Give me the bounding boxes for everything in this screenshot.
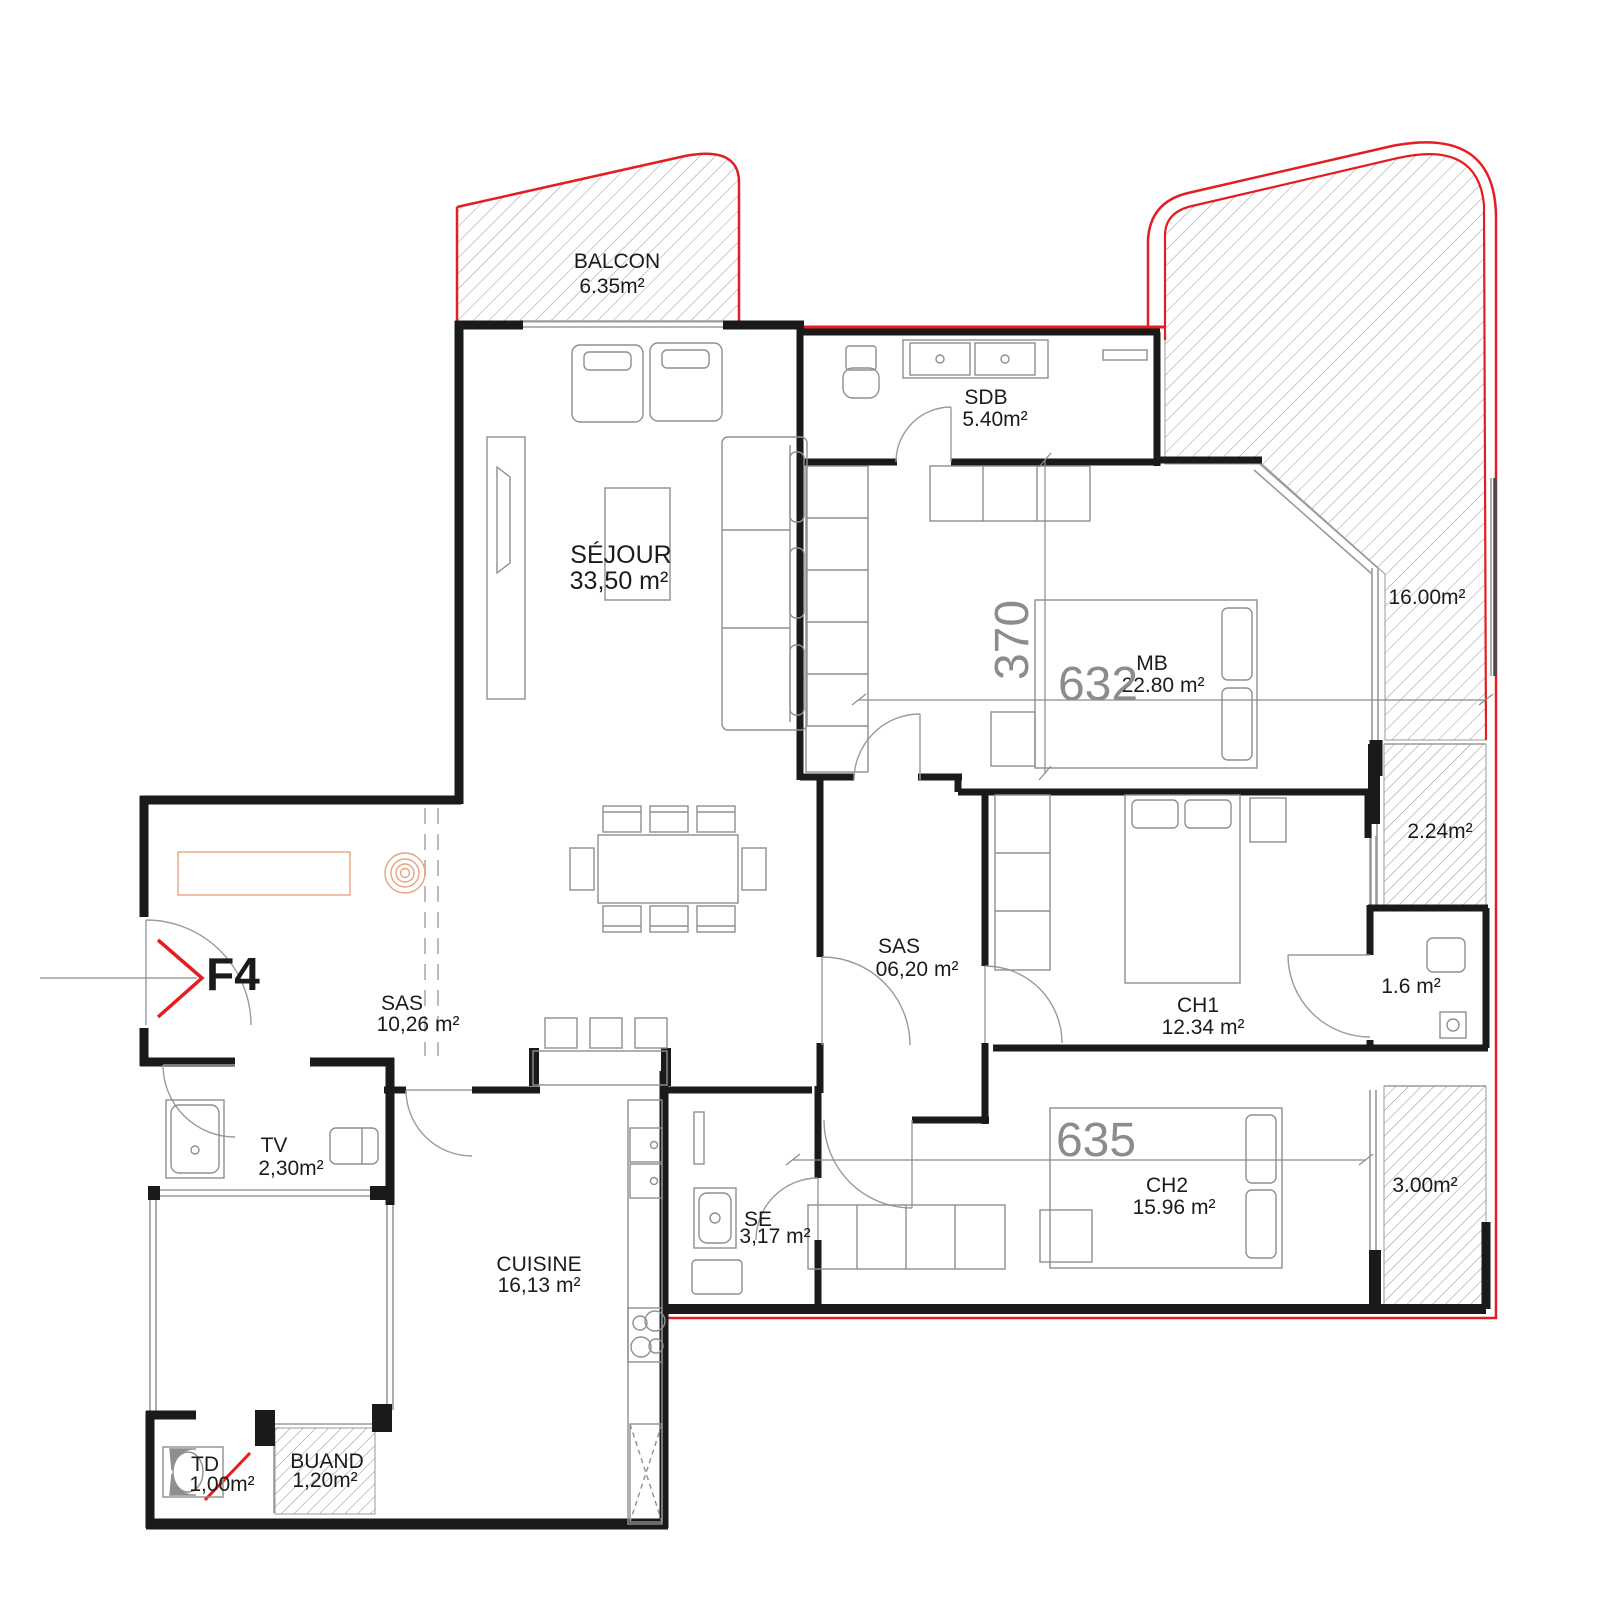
tv-room-window: [154, 1190, 378, 1196]
ch1-furniture: [995, 795, 1286, 983]
entry-console: [178, 852, 425, 895]
terrace-hatch: [1165, 154, 1486, 740]
wc-door-arc: [1288, 955, 1370, 1037]
sas-hall-area: 06,20 m²: [876, 958, 959, 981]
ch2-furniture: [808, 1108, 1282, 1269]
mb-right-window: [1372, 568, 1378, 740]
cuisine-name: CUISINE: [496, 1253, 581, 1276]
sdb-door-arc: [896, 407, 951, 462]
floor-plan-canvas: BALCON 6.35m² SÉJOUR 33,50 m² SDB 5.40m²…: [0, 0, 1600, 1623]
loggia-300-area: 3.00m²: [1392, 1174, 1457, 1197]
ch2-name: CH2: [1146, 1174, 1188, 1197]
loggia-224-area: 2.24m²: [1407, 820, 1472, 843]
dim-632: 632: [1058, 658, 1138, 711]
dining-table: [570, 806, 766, 932]
armchairs: [572, 343, 722, 422]
walls-exterior: [140, 321, 1486, 1528]
sejour-area: 33,50 m²: [570, 567, 669, 595]
se-fixtures: [692, 1112, 742, 1294]
kitchen-left-wall: [387, 1205, 393, 1410]
dim-635: 635: [1056, 1114, 1136, 1167]
buand-area: 1,20m²: [292, 1469, 357, 1492]
balcon-name: BALCON: [574, 250, 660, 273]
sas-hall-name: SAS: [878, 935, 920, 958]
dim-370: 370: [986, 600, 1039, 680]
sas-entree-area: 10,26 m²: [377, 1013, 460, 1036]
ch2-door-arc: [824, 1120, 912, 1208]
balcon-area: 6.35m²: [579, 275, 644, 298]
cuisine-area: 16,13 m²: [498, 1274, 581, 1297]
kitchen-door-arc: [406, 1090, 472, 1156]
wall-posts: [148, 1048, 671, 1446]
sas-entree-name: SAS: [381, 992, 423, 1015]
floor-plan: BALCON 6.35m² SÉJOUR 33,50 m² SDB 5.40m²…: [0, 0, 1600, 1623]
furniture: [163, 340, 1466, 1524]
doors: [146, 407, 1370, 1240]
left-lower-wall: [150, 1200, 156, 1415]
ch2-area: 15.96 m²: [1133, 1196, 1216, 1219]
ch2-right-window: [1370, 1090, 1376, 1250]
kitchen-bar: [533, 1018, 667, 1085]
sdb-name: SDB: [964, 386, 1007, 409]
sofa: [722, 437, 807, 730]
tv-area: 2,30m²: [258, 1157, 323, 1180]
mb-door-arc: [854, 714, 920, 780]
wc-area: 1.6 m²: [1381, 975, 1441, 998]
tv-unit: [487, 437, 525, 699]
terrasse-area: 16.00m²: [1388, 586, 1465, 609]
kitchen-counter: [628, 1100, 665, 1524]
td-area: 1,00m²: [189, 1473, 254, 1496]
sejour-name: SÉJOUR: [570, 540, 671, 569]
ch1-name: CH1: [1177, 994, 1219, 1017]
ch1-door-arc: [985, 966, 1062, 1043]
mb-name: MB: [1136, 652, 1168, 675]
ch1-area: 12.34 m²: [1162, 1016, 1245, 1039]
sdb-area: 5.40m²: [962, 408, 1027, 431]
unit-label: F4: [206, 948, 260, 1000]
dimension-lines: [40, 453, 1493, 1165]
tv-name: TV: [261, 1134, 288, 1157]
se-area: 3,17 m²: [739, 1225, 810, 1248]
